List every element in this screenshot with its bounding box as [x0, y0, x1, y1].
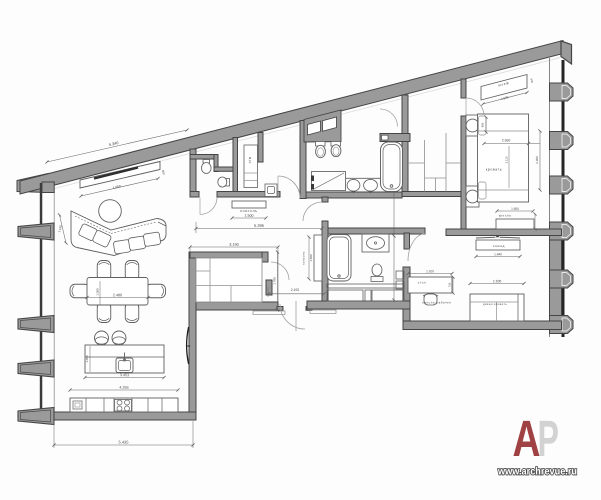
svg-text:консоль: консоль	[240, 209, 257, 213]
svg-text:2.100: 2.100	[493, 279, 502, 283]
svg-text:стол: стол	[418, 280, 427, 284]
svg-text:600: 600	[530, 78, 534, 83]
svg-text:2.155: 2.155	[291, 288, 300, 292]
svg-text:1.500: 1.500	[501, 95, 510, 101]
svg-text:1.600: 1.600	[511, 207, 519, 211]
svg-text:1.320: 1.320	[426, 269, 434, 273]
svg-text:диван кровать: диван кровать	[483, 302, 507, 306]
svg-text:1.050: 1.050	[85, 355, 89, 363]
svg-text:кресло рабочее: кресло рабочее	[422, 300, 451, 304]
svg-text:A: A	[513, 410, 541, 467]
svg-text:1.650: 1.650	[112, 184, 121, 190]
svg-text:СТМ: СТМ	[248, 156, 252, 163]
svg-text:600: 600	[161, 170, 166, 176]
svg-text:комод: комод	[493, 244, 505, 248]
svg-text:5.295: 5.295	[254, 223, 265, 228]
svg-text:www.archrevue.ru: www.archrevue.ru	[497, 467, 577, 478]
svg-text:3.453: 3.453	[120, 373, 129, 377]
svg-text:кровать: кровать	[486, 167, 502, 171]
svg-text:1.080: 1.080	[95, 288, 99, 296]
svg-text:5.435: 5.435	[118, 439, 129, 444]
svg-text:2.480: 2.480	[113, 293, 122, 297]
svg-text:1.155: 1.155	[57, 224, 63, 233]
svg-text:1.500: 1.500	[309, 254, 313, 262]
svg-text:720: 720	[449, 282, 452, 287]
svg-text:2.350: 2.350	[535, 156, 539, 164]
svg-text:P: P	[538, 410, 559, 467]
svg-text:2.950: 2.950	[502, 138, 511, 142]
svg-text:3.113: 3.113	[505, 156, 509, 163]
svg-text:1.500: 1.500	[244, 214, 253, 218]
svg-text:консоль: консоль	[302, 251, 306, 265]
svg-text:кресло: кресло	[499, 213, 512, 217]
svg-text:4.293: 4.293	[119, 386, 128, 390]
svg-text:900: 900	[482, 122, 485, 127]
svg-text:1.840: 1.840	[494, 252, 502, 256]
svg-text:1.780: 1.780	[273, 277, 277, 285]
svg-text:3.190: 3.190	[229, 243, 239, 247]
